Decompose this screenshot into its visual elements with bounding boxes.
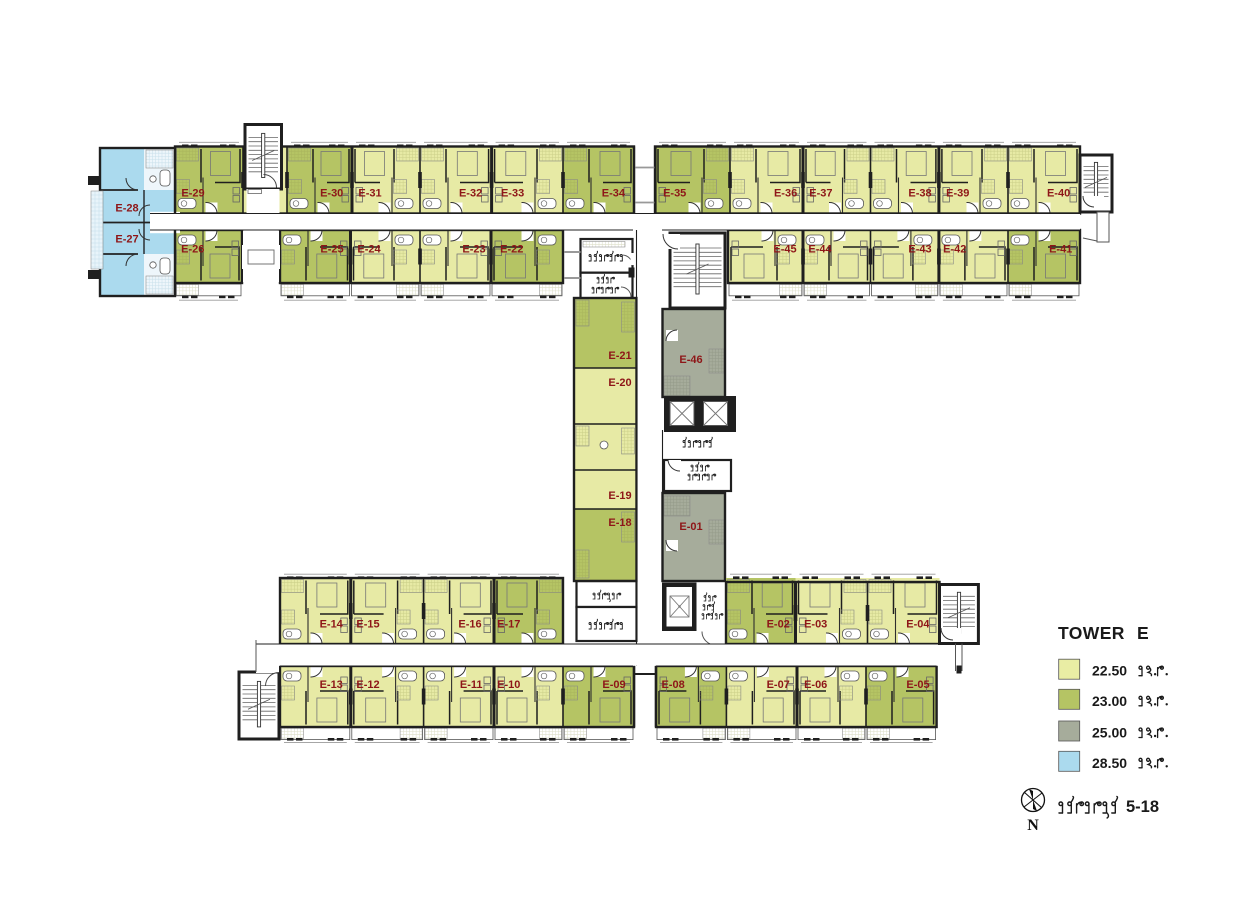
svg-text:E-21: E-21 (608, 350, 631, 362)
svg-text:E-01: E-01 (679, 521, 702, 533)
svg-text:E-32: E-32 (459, 188, 482, 200)
svg-text:E-05: E-05 (906, 679, 929, 691)
svg-text:E-40: E-40 (1047, 188, 1070, 200)
svg-text:E-12: E-12 (356, 679, 379, 691)
svg-text:25.00: 25.00 (1092, 725, 1127, 741)
svg-text:E-34: E-34 (602, 188, 626, 200)
svg-text:5-18: 5-18 (1126, 798, 1159, 816)
svg-text:E-41: E-41 (1049, 244, 1072, 256)
svg-text:E-16: E-16 (458, 619, 481, 631)
svg-text:E-19: E-19 (608, 490, 631, 502)
svg-text:E-04: E-04 (906, 619, 930, 631)
svg-text:E-37: E-37 (809, 188, 832, 200)
svg-text:E-07: E-07 (767, 679, 790, 691)
svg-text:E-13: E-13 (320, 679, 343, 691)
svg-text:E-43: E-43 (908, 244, 931, 256)
svg-text:E-17: E-17 (497, 619, 520, 631)
svg-text:E-28: E-28 (115, 203, 138, 215)
svg-text:E-45: E-45 (773, 244, 796, 256)
svg-text:E-39: E-39 (946, 188, 969, 200)
svg-text:E-33: E-33 (501, 188, 524, 200)
svg-text:E-10: E-10 (497, 679, 520, 691)
svg-text:E-14: E-14 (320, 619, 344, 631)
svg-text:E-35: E-35 (663, 188, 686, 200)
svg-text:E-44: E-44 (808, 244, 832, 256)
svg-text:E-31: E-31 (358, 188, 381, 200)
svg-text:E-03: E-03 (804, 619, 827, 631)
svg-text:E-11: E-11 (460, 679, 483, 691)
svg-text:22.50: 22.50 (1092, 663, 1127, 679)
svg-text:E-18: E-18 (608, 517, 631, 529)
svg-text:23.00: 23.00 (1092, 693, 1127, 709)
svg-text:E-29: E-29 (181, 188, 204, 200)
svg-text:E-27: E-27 (115, 234, 138, 246)
svg-text:E-38: E-38 (908, 188, 931, 200)
svg-text:E-36: E-36 (774, 188, 797, 200)
svg-text:E-30: E-30 (320, 188, 343, 200)
svg-text:E-46: E-46 (679, 354, 702, 366)
svg-text:E-20: E-20 (608, 377, 631, 389)
svg-text:TOWER: TOWER (1058, 623, 1125, 643)
svg-text:E-15: E-15 (356, 619, 379, 631)
svg-text:E-02: E-02 (767, 619, 790, 631)
svg-text:N: N (1027, 817, 1039, 834)
svg-text:E: E (1137, 623, 1149, 643)
svg-text:28.50: 28.50 (1092, 755, 1127, 771)
svg-text:E-24: E-24 (357, 244, 381, 256)
svg-text:E-26: E-26 (181, 244, 204, 256)
svg-text:E-23: E-23 (462, 244, 485, 256)
svg-text:E-25: E-25 (320, 244, 343, 256)
svg-text:E-42: E-42 (943, 244, 966, 256)
svg-text:E-22: E-22 (500, 244, 523, 256)
svg-text:E-08: E-08 (661, 679, 684, 691)
svg-text:E-06: E-06 (804, 679, 827, 691)
svg-text:E-09: E-09 (602, 679, 625, 691)
